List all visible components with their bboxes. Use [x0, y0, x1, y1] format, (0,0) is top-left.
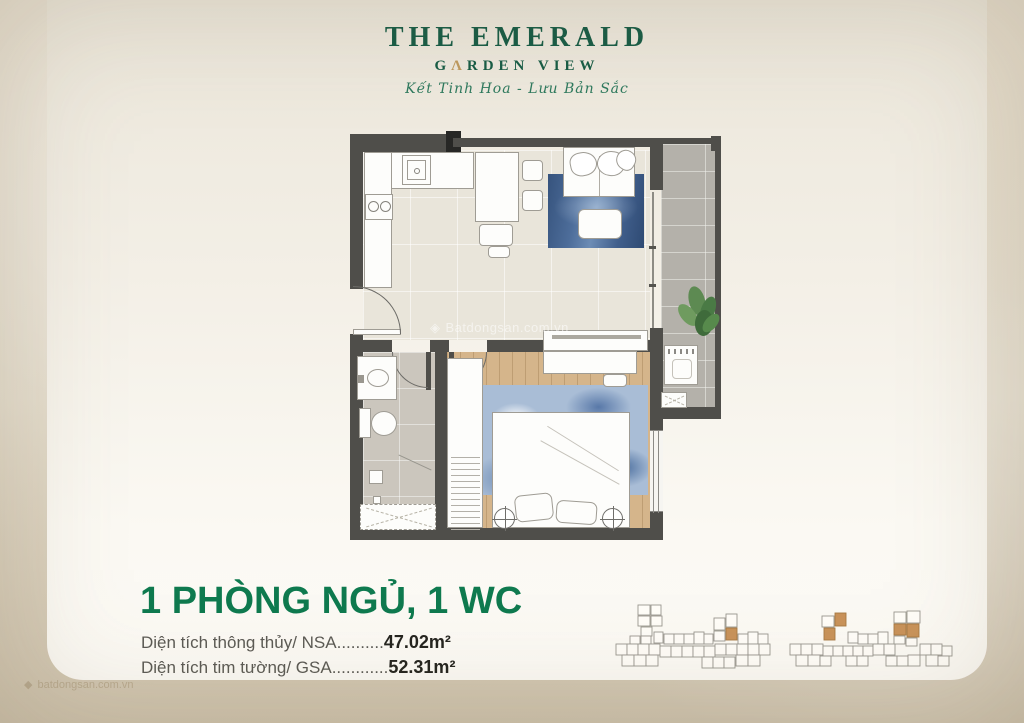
window-frame-line [658, 431, 659, 513]
unit-areas: Diện tích thông thủy/ NSA..........47.02… [141, 630, 455, 680]
bedroom-window [650, 430, 663, 512]
wall-top-thin [453, 138, 663, 147]
wall-top-thick [350, 134, 455, 152]
dining-table [475, 152, 519, 222]
washer-lid [672, 359, 692, 379]
site-plan-left [610, 604, 776, 674]
wall-balcony-rail [715, 140, 721, 418]
wall-left-upper [350, 134, 363, 289]
bedroom-dresser-stool [603, 374, 627, 387]
site-plan-right [786, 610, 956, 674]
wardrobe-slats [451, 457, 480, 531]
watermark-diamond-icon: ◈ [430, 320, 441, 335]
cooktop [365, 194, 393, 220]
sink-faucet [414, 168, 420, 174]
balcony-glass-door [652, 192, 654, 328]
wall-living-balcony-upper [650, 138, 663, 190]
watermark-diamond-icon: ◆ [24, 679, 32, 691]
shower-mixer [369, 470, 383, 484]
sofa [563, 147, 635, 197]
wall-middle-a [350, 340, 392, 352]
leader-dots: ............ [332, 658, 389, 677]
basin-faucet [358, 375, 364, 383]
brand-subtitle-suffix: RDEN VIEW [467, 58, 600, 74]
area-value: 52.31m² [388, 657, 455, 677]
balcony-mat [661, 392, 687, 408]
washing-machine [664, 345, 698, 385]
brand-title: THE EMERALD [257, 22, 777, 54]
cooktop-burner [368, 201, 379, 212]
dining-chair [522, 160, 543, 181]
window-frame-line [653, 431, 654, 513]
toilet-bowl [371, 411, 397, 436]
dining-chair [488, 246, 510, 258]
bedside-light [494, 508, 515, 529]
area-label: Diện tích thông thủy/ NSA [141, 633, 337, 652]
brand-subtitle: GΛRDEN VIEW [257, 58, 777, 75]
wall-middle-pillar [430, 340, 449, 352]
unit-headline: 1 PHÒNG NGỦ, 1 WC [140, 580, 522, 623]
area-row-nsa: Diện tích thông thủy/ NSA..........47.02… [141, 630, 455, 655]
area-row-gsa: Diện tích tim tường/ GSA............52.3… [141, 655, 455, 680]
watermark-corner-text: batdongsan.com.vn [37, 679, 133, 691]
washer-controls [668, 349, 695, 354]
floor-plan [345, 128, 748, 546]
wall-balcony-bottom [657, 407, 721, 419]
wall-balcony-top [661, 138, 717, 144]
area-label: Diện tích tim tường/ GSA [141, 658, 332, 677]
brand-tagline: Kết Tinh Hoa - Lưu Bản Sắc [257, 81, 777, 97]
toilet-tank [359, 408, 371, 438]
coffee-table [578, 209, 622, 239]
pillow [555, 500, 598, 526]
brand-logo: THE EMERALD GΛRDEN VIEW Kết Tinh Hoa - L… [257, 22, 777, 97]
bath-mat [360, 504, 436, 530]
wall-bath-bedroom [435, 352, 447, 528]
glass-door-handle [649, 284, 656, 287]
watermark-center-text: Batdongsan.com.vn [446, 320, 569, 335]
triangle-icon: Λ [451, 58, 467, 74]
bedside-light [602, 508, 623, 529]
light-cross [505, 506, 506, 531]
bathroom-basin [357, 356, 397, 400]
leader-dots: .......... [337, 633, 384, 652]
kitchen-sink [402, 155, 431, 185]
dining-chair [522, 190, 543, 211]
brand-subtitle-prefix: G [434, 58, 451, 74]
basin-bowl [367, 369, 389, 387]
dining-chair [479, 224, 513, 246]
watermark-center: ◈Batdongsan.com.vn [430, 320, 569, 336]
wall-bedroom-right-lower [650, 512, 663, 540]
bedroom-dresser [543, 351, 637, 374]
watermark-corner: ◆batdongsan.com.vn [24, 678, 133, 691]
sofa-cushion [568, 149, 599, 178]
wardrobe [447, 358, 483, 528]
glass-door-handle [649, 246, 656, 249]
area-value: 47.02m² [384, 632, 451, 652]
pillow [514, 492, 555, 523]
page: { "brand": { "title": "THE EMERALD", "su… [0, 0, 1024, 723]
floor-drain [373, 496, 381, 504]
light-cross [613, 506, 614, 531]
cooktop-burner [380, 201, 391, 212]
kitchen-counter-left [364, 152, 392, 288]
